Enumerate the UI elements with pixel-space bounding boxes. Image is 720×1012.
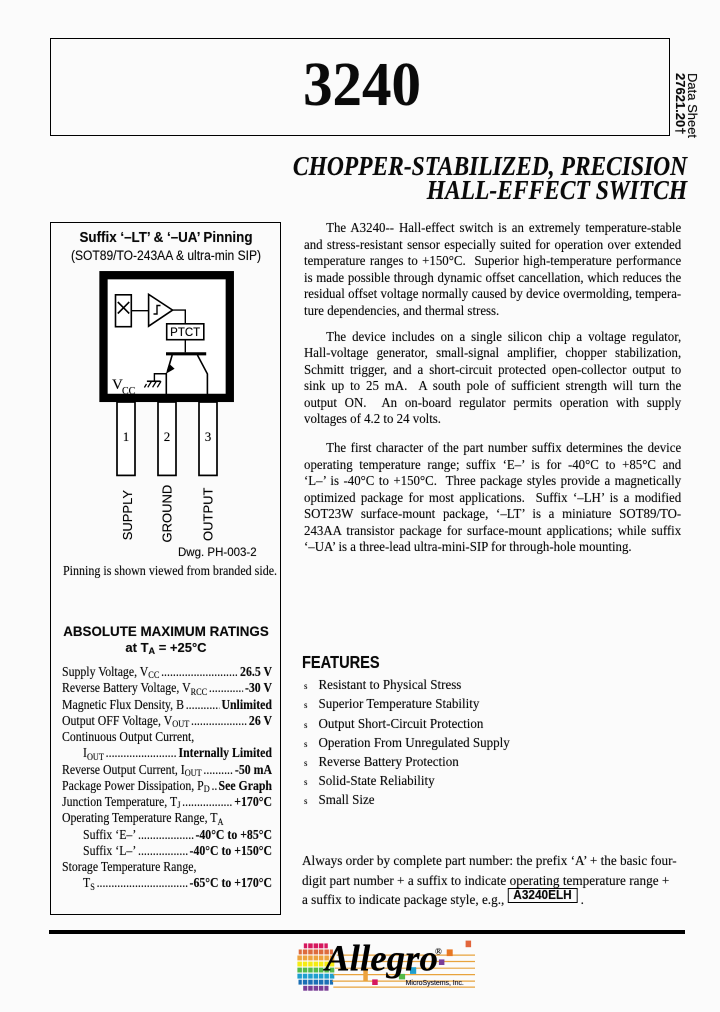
svg-text:2: 2 xyxy=(164,429,171,444)
svg-text:®: ® xyxy=(435,947,442,957)
svg-text:OUTPUT: OUTPUT xyxy=(201,488,216,542)
svg-text:CC: CC xyxy=(122,386,136,397)
svg-text:3: 3 xyxy=(205,429,212,444)
svg-text:Allegro: Allegro xyxy=(323,940,438,980)
svg-text:SUPPLY: SUPPLY xyxy=(120,490,135,541)
svg-text:PTCT: PTCT xyxy=(170,327,200,339)
svg-text:GROUND: GROUND xyxy=(160,485,175,543)
svg-text:MicroSystems, Inc.: MicroSystems, Inc. xyxy=(406,980,464,987)
svg-text:1: 1 xyxy=(123,429,130,444)
